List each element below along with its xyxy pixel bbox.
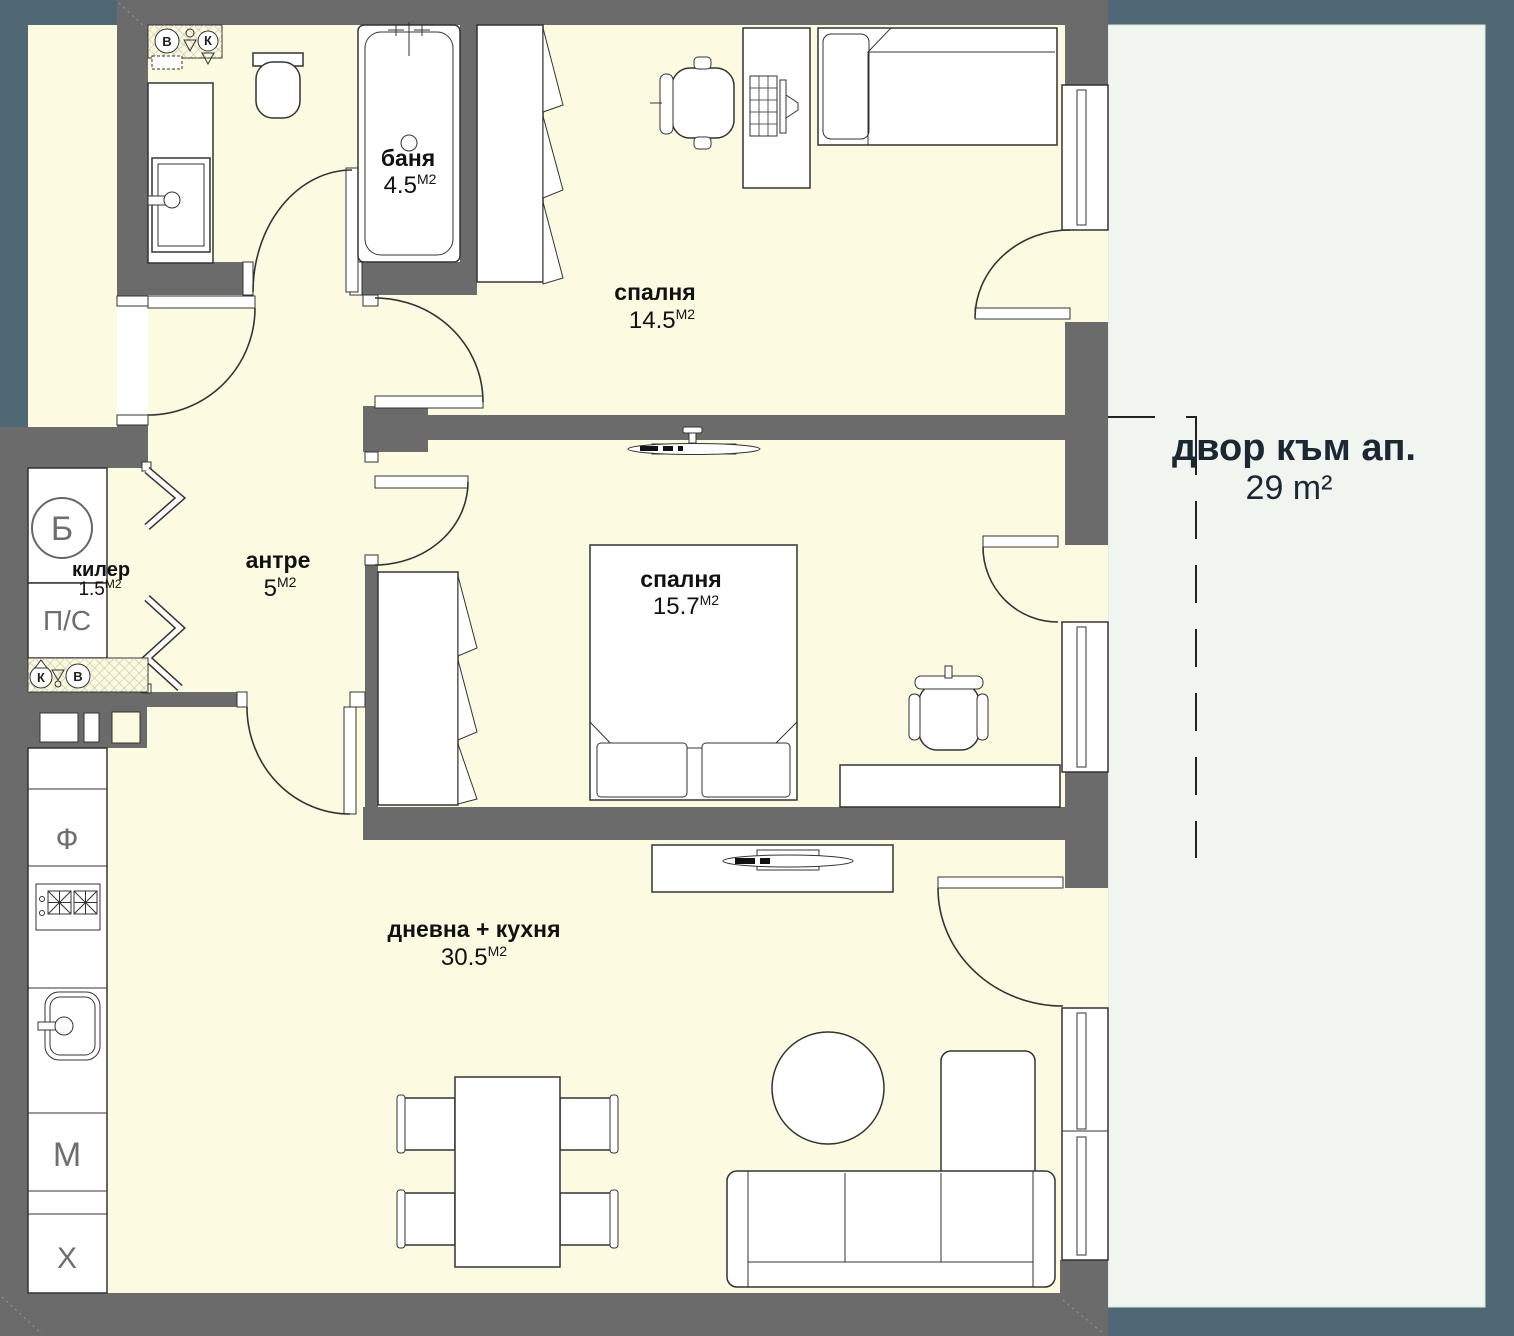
pillow-right <box>702 743 790 797</box>
kitchen-tap <box>55 1017 73 1035</box>
bathroom-vanity <box>148 83 213 263</box>
bathtub <box>358 22 460 262</box>
yard-area <box>1108 25 1485 1307</box>
living-yard-door-leaf <box>938 877 1063 888</box>
water-riser-label: В <box>73 669 82 684</box>
wall-top <box>117 0 1108 25</box>
room-name-bedroom2: спалня <box>640 566 721 592</box>
living-door-leaf <box>344 707 356 814</box>
bathtub-outer <box>358 25 460 262</box>
bedroom2-yard-door-leaf <box>983 536 1058 547</box>
shaft-opening-2 <box>84 713 99 742</box>
office-chair-seat <box>672 68 734 138</box>
room-name-bathroom: баня <box>381 145 435 171</box>
oven-label: Ф <box>56 823 79 856</box>
monitor <box>780 80 786 133</box>
entrance-opening <box>117 306 148 417</box>
sewer-riser-label: К <box>204 33 212 48</box>
bedroom2-door-leaf <box>375 476 468 488</box>
tv-cabinet <box>652 845 893 892</box>
boiler-label: Б <box>51 510 73 548</box>
shaft-opening-3 <box>112 712 140 743</box>
bedroom1-yard-door-leaf <box>975 308 1070 319</box>
vent-shaft-block <box>28 707 147 748</box>
toilet-bowl <box>256 62 300 118</box>
floor-plan: В К <box>0 0 1514 1336</box>
wall-right-4 <box>1060 1260 1108 1336</box>
coffee-table <box>772 1032 884 1144</box>
window-living <box>1062 1008 1108 1260</box>
bathroom-door-leaf <box>346 168 358 292</box>
yard-title: двор към ап. <box>1172 427 1416 469</box>
dashed-service-box <box>152 56 182 69</box>
bedroom1-door-leaf <box>375 396 483 408</box>
shaft-opening-1 <box>40 713 78 742</box>
sofa-body <box>727 1171 1055 1287</box>
room-name-hallway: антре <box>246 547 311 573</box>
wall-right-1 <box>1065 0 1108 85</box>
dining-chair <box>560 1098 611 1150</box>
sewer-riser-label: К <box>37 670 45 685</box>
bench <box>840 765 1060 807</box>
wall-bath-bedroom1 <box>460 25 477 295</box>
wardrobe-bedroom2 <box>378 572 477 805</box>
room-name-living: дневна + кухня <box>387 916 560 942</box>
desk <box>743 28 810 188</box>
yard-area: 29 m² <box>1246 469 1333 507</box>
kitchen-sink <box>38 992 100 1060</box>
pillow-left <box>597 743 687 797</box>
dining-chair <box>404 1193 455 1245</box>
keyboard <box>750 76 777 136</box>
wall-hallway-living <box>0 692 247 707</box>
pillow <box>823 34 869 139</box>
floor-plan-canvas: В К <box>0 0 1514 1336</box>
wall-bedroom2-living <box>363 807 1065 840</box>
fridge-label: Х <box>57 1242 77 1275</box>
dining-table <box>455 1077 560 1267</box>
wall-bath-bottom-left <box>117 262 253 295</box>
armchair-bedroom2 <box>909 666 988 750</box>
single-bed <box>818 28 1057 145</box>
kitchen-tap-handle <box>38 1022 56 1030</box>
armchair-seat <box>919 684 979 750</box>
entrance-door-leaf <box>148 296 255 308</box>
window-bedroom2 <box>1062 622 1108 772</box>
wall-right-2 <box>1065 322 1108 545</box>
office-chair-back <box>660 74 673 134</box>
toilet <box>253 53 303 118</box>
wall-hallway-bedroom2 <box>365 565 378 830</box>
dining-chair <box>404 1098 455 1150</box>
washer-dryer-label: П/С <box>43 605 91 636</box>
wall-divider-block <box>363 406 428 452</box>
room-name-bedroom1: спалня <box>614 279 695 305</box>
wall-right-3 <box>1065 772 1108 888</box>
wardrobe-bedroom1 <box>477 25 563 284</box>
wall-bath-bottom-right <box>350 262 477 295</box>
dining-chair <box>560 1193 611 1245</box>
wall-bottom <box>0 1293 1108 1336</box>
riser-strip-closet: К В <box>28 658 148 692</box>
sink-tap-handle <box>148 196 166 205</box>
water-riser-label: В <box>162 34 171 49</box>
wall-bedrooms-divider <box>363 415 1065 440</box>
wall-left-lower <box>0 427 28 1336</box>
dishwasher-label: М <box>53 1136 81 1174</box>
sink-tap <box>164 192 180 208</box>
window-bedroom1 <box>1062 85 1108 230</box>
